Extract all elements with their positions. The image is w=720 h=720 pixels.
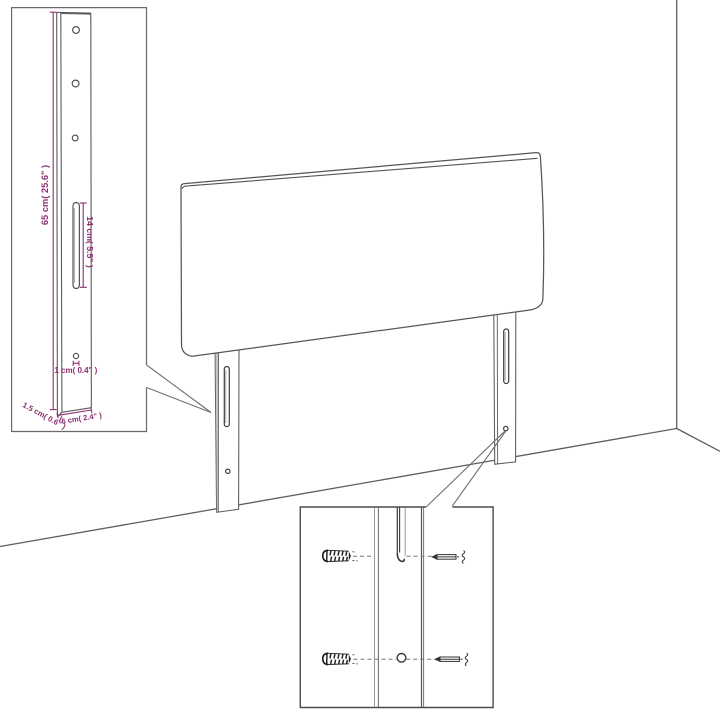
svg-text:65 cm( 25.6" ): 65 cm( 25.6" ): [40, 165, 50, 225]
svg-text:6 cm( 2.4" ): 6 cm( 2.4" ): [61, 411, 103, 426]
svg-text:1 cm( 0.4" ): 1 cm( 0.4" ): [54, 366, 97, 375]
svg-text:14 cm( 5.5" ): 14 cm( 5.5" ): [85, 216, 95, 268]
